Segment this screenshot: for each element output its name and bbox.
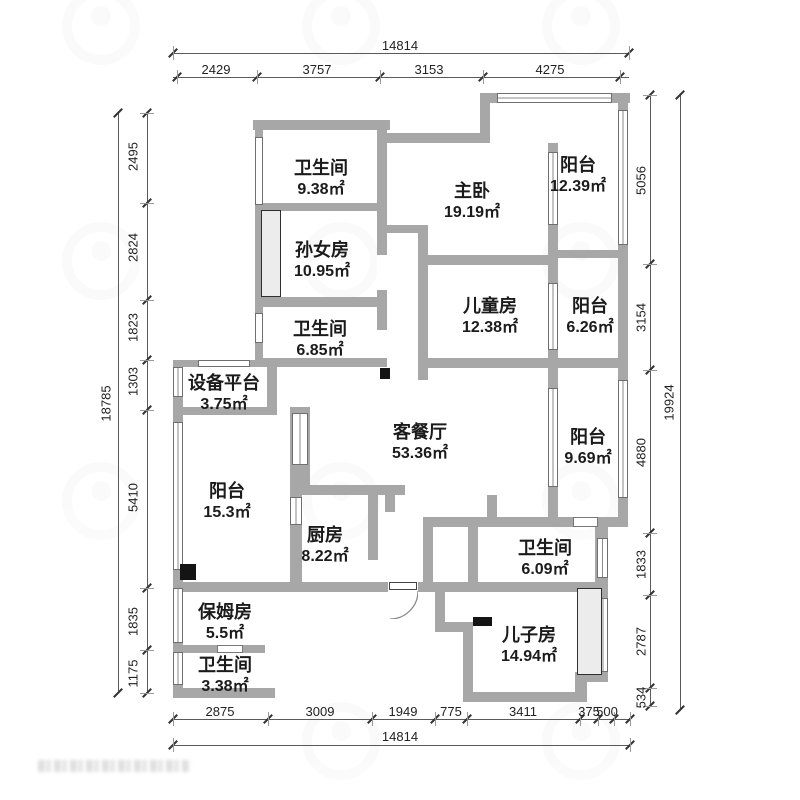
dim-line [173,719,630,720]
dim-label: 5056 [634,153,649,209]
room-label: 卫生间6.85㎡ [293,318,347,361]
room-label: 保姆房5.5㎡ [198,601,252,644]
wall [267,360,277,415]
dim-label: 1833 [634,537,649,593]
wall [418,582,595,592]
dim-label: 1175 [126,646,141,702]
dim-stub [257,70,258,84]
room-label: 设备平台3.75㎡ [188,372,260,415]
dim-stub [140,693,154,694]
door-opening [377,330,387,358]
dim-stub [643,595,657,596]
window [597,538,608,578]
dim-stub [140,650,154,651]
room-label: 孙女房10.95㎡ [294,239,350,282]
dim-stub [643,95,657,96]
dim-label: 2875 [195,704,245,719]
door-opening [377,255,387,290]
dim-label: 500 [582,704,632,719]
dim-label: 3411 [498,704,548,719]
dim-label: 2495 [126,129,141,185]
wall [423,517,573,527]
room-label: 主卧19.19㎡ [444,180,500,223]
entry-door-arc [389,590,418,619]
window [173,422,183,570]
dim-label: 4880 [634,425,649,481]
dim-stub [483,70,484,84]
dim-line [173,53,629,54]
dim-stub [629,46,630,60]
wall [428,255,548,265]
wall [487,495,497,517]
room-label: 阳台9.69㎡ [564,426,611,469]
wall [598,517,628,527]
dim-label: 19924 [662,368,677,438]
window [292,413,308,465]
window [548,283,558,350]
window [497,93,612,103]
dim-stub [140,410,154,411]
dim-stub [643,370,657,371]
dim-line [118,113,119,693]
wall [383,133,490,143]
window [173,588,183,643]
dim-stub [268,712,269,726]
wall [548,258,558,285]
dim-line [173,745,630,746]
door-opening [217,645,243,653]
column [180,564,196,580]
dim-stub [140,203,154,204]
dim-stub [140,360,154,361]
dim-line [650,95,651,706]
room-label: 卫生间3.38㎡ [198,654,252,697]
wall [253,120,390,130]
dim-label: 18785 [99,369,114,439]
wardrobe [261,210,281,297]
dim-label: 3153 [404,62,454,77]
watermark-logo [62,0,140,65]
wall [548,350,558,390]
dim-line [680,95,681,710]
room-label: 卫生间9.38㎡ [294,157,348,200]
dim-label: 1303 [126,354,141,410]
dim-stub [140,588,154,589]
dim-stub [380,70,381,84]
dim-stub [620,70,621,84]
dim-stub [173,738,174,752]
floor-plan: 卫生间9.38㎡ 孙女房10.95㎡ 卫生间6.85㎡ 设备平台3.75㎡ 阳台… [0,0,800,800]
wardrobe [577,588,602,675]
dim-stub [643,264,657,265]
room-label: 厨房8.22㎡ [301,524,348,567]
dim-label: 2429 [191,62,241,77]
wall [418,358,628,368]
wall [418,225,428,380]
wall [435,622,473,632]
dim-label: 5410 [126,470,141,526]
room-label: 阳台15.3㎡ [203,480,250,523]
dim-line [173,77,629,78]
entry-door-leaf [389,582,417,590]
dim-stub [140,300,154,301]
dim-stub [173,46,174,60]
room-label: 阳台12.39㎡ [550,154,606,197]
dim-label: 3009 [295,704,345,719]
dim-label: 1949 [378,704,428,719]
watermark-logo [542,0,620,65]
column [380,368,390,379]
dim-label: 1823 [126,300,141,356]
wall [255,297,387,307]
watermark-blurred-text [38,760,190,772]
watermark-logo [302,0,380,65]
window [548,388,558,487]
room-label: 儿童房12.38㎡ [462,295,518,338]
window [618,380,628,498]
window [255,137,263,205]
room-label: 卫生间6.09㎡ [518,537,572,580]
window [290,497,302,525]
dim-stub [177,70,178,84]
wall [290,485,405,495]
window [173,367,183,397]
dim-stub [630,738,631,752]
room-label: 客餐厅53.36㎡ [392,421,448,464]
dim-label: 3154 [634,290,649,346]
window [618,110,628,245]
window [255,313,263,343]
dim-label: 2824 [126,220,141,276]
wall [368,495,378,560]
dim-stub [643,533,657,534]
door-opening [573,517,598,527]
dim-stub [372,712,373,726]
dim-label: 3757 [292,62,342,77]
window [173,652,183,685]
dim-label: 2787 [634,614,649,670]
wall [548,250,628,258]
window [198,360,250,367]
wall [463,692,587,702]
dim-label: 1835 [126,594,141,650]
room-label: 儿子房14.94㎡ [501,624,557,667]
dim-stub [140,113,154,114]
wall [385,495,395,512]
wall [173,582,388,592]
dim-label: 775 [426,704,476,719]
dim-label: 4275 [525,62,575,77]
dim-label: 534 [634,670,649,726]
column [473,617,492,626]
dim-stub [173,712,174,726]
dim-label: 14814 [370,38,430,53]
dim-label: 14814 [370,729,430,744]
room-label: 阳台6.26㎡ [566,295,613,338]
wall [548,487,558,520]
